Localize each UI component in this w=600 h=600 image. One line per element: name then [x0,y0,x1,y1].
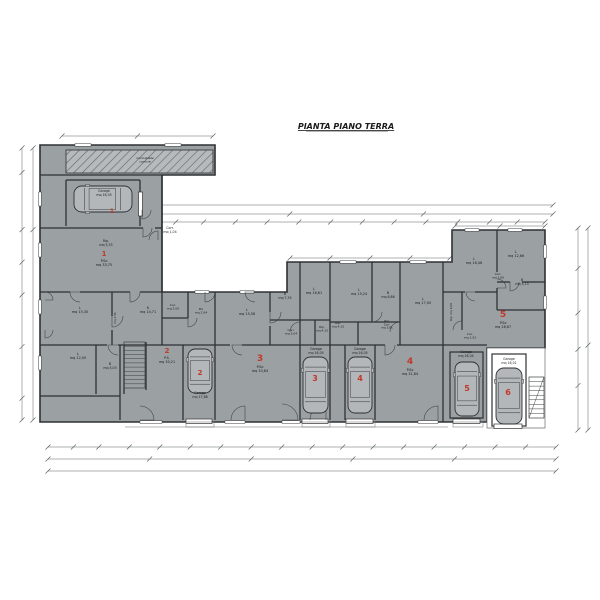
unit-number: 4 [357,374,363,383]
window [465,229,479,232]
room-label: Garagemq 16,05 [96,189,111,197]
car-mirror [186,358,188,362]
car-body [348,357,372,413]
drawing-page: PIANTA PIANO TERRA Garagemq 16,05Rip.mq … [0,0,600,600]
room-label: mq 2,51 [113,312,117,324]
unit-number: 5 [500,310,506,320]
car-mirror [212,358,214,362]
car-mirror [328,368,330,372]
unit-number: 3 [257,354,263,364]
unit-number: 5 [464,384,470,393]
car-mirror [494,379,496,383]
room-label: Corr.mq 1,04 [163,226,176,234]
unit-number: 2 [198,369,203,377]
room-label: Garagemq 16,04 [458,350,473,358]
window [544,245,547,258]
room-label: Garagemq 16,01 [501,357,516,365]
garage-door [186,419,212,424]
car-mirror [372,368,374,372]
unit-number: 3 [312,374,318,383]
room-label: Garagemq 16,05 [352,347,367,355]
unit-number: 4 [407,357,413,367]
plan-title: PIANTA PIANO TERRA [298,122,394,131]
unit-number: 2 [165,347,170,355]
garage-door [346,419,373,424]
window [195,291,209,294]
window [410,261,426,264]
garage-door [494,424,522,429]
car-body [303,357,328,413]
floor-plan-svg: PIANTA PIANO TERRA Garagemq 16,05Rip.mq … [0,0,600,600]
window [39,243,42,257]
window [39,300,42,314]
room-label: Garagemq 17,88 [192,391,207,399]
window [508,229,522,232]
window [165,144,181,147]
window [418,421,438,424]
car-mirror [522,379,524,383]
garage-door [302,419,328,424]
window [75,144,91,147]
window [39,356,42,370]
window [225,421,245,424]
window [340,261,356,264]
car-mirror [453,373,455,377]
unit-number: 1 [102,250,107,258]
car-mirror [301,368,303,372]
car-mirror [346,368,348,372]
window [282,421,300,424]
window [39,192,42,206]
unit-number: 1 [110,208,114,215]
garage-door [453,419,480,424]
room-label: Garagemq 16,05 [308,347,323,355]
room-label: Rip. mq 4,09 [449,303,453,321]
unit-number: 6 [505,388,511,397]
window [140,421,162,424]
car-mirror [86,212,90,214]
car-mirror [479,373,481,377]
car-mirror [86,184,90,186]
window [544,296,547,309]
